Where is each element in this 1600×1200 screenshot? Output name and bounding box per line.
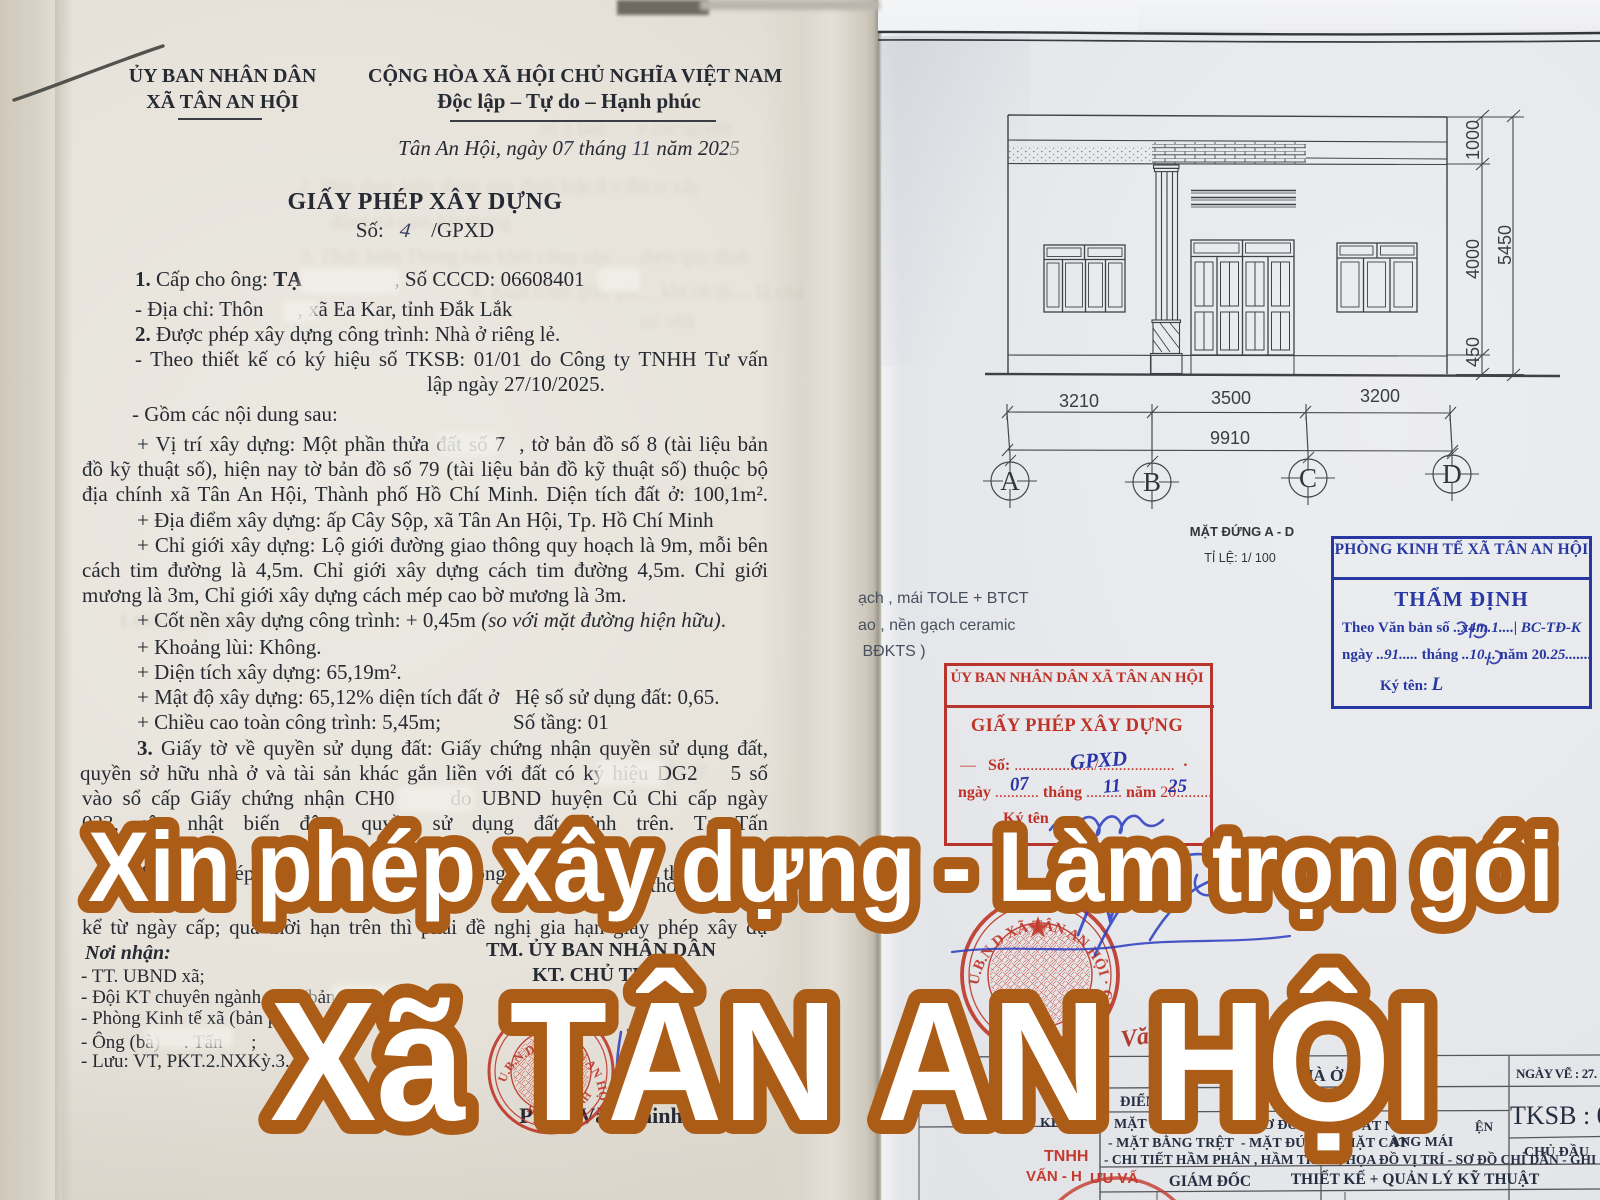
svg-text:Xã TÂN AN HỘI: Xã TÂN AN HỘI — [270, 967, 1435, 1157]
svg-text:Xin phép xây dựng - Làm trọn g: Xin phép xây dựng - Làm trọn gói — [88, 811, 1554, 922]
